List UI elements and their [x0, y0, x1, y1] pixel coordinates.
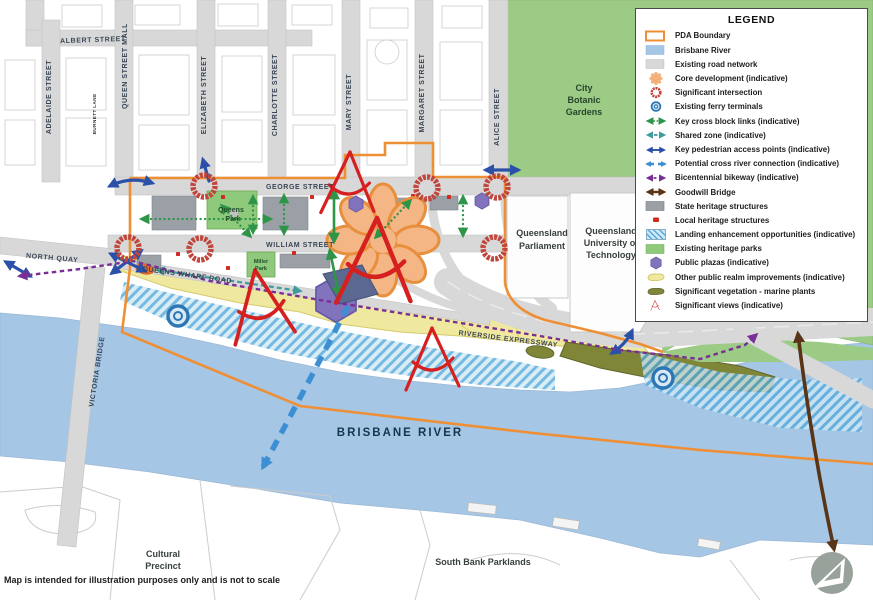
legend-label: Existing road network	[675, 60, 757, 69]
legend-label: Key pedestrian access points (indicative…	[675, 145, 830, 154]
legend-label: Existing heritage parks	[675, 244, 762, 253]
cross-river-icon	[643, 158, 669, 170]
cross-block-links-icon	[643, 115, 669, 127]
legend-row-cross-block: Key cross block links (indicative)	[643, 115, 860, 127]
south-bank-parklands-label: South Bank Parklands	[435, 557, 531, 567]
significant-views-icon	[643, 300, 669, 312]
legend-label: Local heritage structures	[675, 216, 769, 225]
alice-street-label: ALICE STREET	[494, 88, 501, 146]
north-arrow-logo	[811, 552, 853, 594]
legend-row-views: Significant views (indicative)	[643, 300, 860, 312]
legend-row-heritage-parks: Existing heritage parks	[643, 243, 860, 255]
qut-label: Queensland	[585, 226, 637, 236]
burnett-lane-label: BURNETT LANE	[92, 93, 98, 134]
legend-title: LEGEND	[643, 14, 860, 26]
charlotte-street-label: CHARLOTTE STREET	[272, 54, 279, 136]
cultural-precinct-label2: Precinct	[145, 561, 181, 571]
queens-park-label2: Park	[225, 216, 240, 223]
queen-street-mall-label: QUEEN STREET MALL	[122, 23, 129, 109]
botanic-gardens-label: City	[575, 83, 592, 93]
state-heritage-icon	[643, 200, 669, 212]
map-disclaimer: Map is intended for illustration purpose…	[4, 575, 280, 585]
parliament-label2: Parliament	[519, 241, 565, 251]
mary-street-label: MARY STREET	[346, 74, 353, 131]
legend-panel: LEGEND PDA Boundary Brisbane River Exist…	[635, 8, 868, 322]
queens-park-label: Queens	[218, 207, 244, 214]
botanic-gardens-label2: Botanic	[567, 95, 600, 105]
miller-park-label: Miller	[254, 259, 269, 265]
legend-row-local-heritage: Local heritage structures	[643, 214, 860, 226]
legend-row-pda-boundary: PDA Boundary	[643, 30, 860, 42]
bikeway-icon	[643, 172, 669, 184]
ferry-terminal-west	[168, 306, 188, 326]
legend-row-river: Brisbane River	[643, 44, 860, 56]
public-realm-icon	[643, 271, 669, 283]
cultural-precinct-label: Cultural	[146, 549, 180, 559]
legend-row-ferry: Existing ferry terminals	[643, 101, 860, 113]
legend-row-goodwill: Goodwill Bridge	[643, 186, 860, 198]
goodwill-bridge-icon	[643, 186, 669, 198]
river-swatch-icon	[643, 44, 669, 56]
legend-label: Existing ferry terminals	[675, 102, 763, 111]
vegetation-icon	[643, 285, 669, 297]
legend-label: Brisbane River	[675, 46, 731, 55]
parliament-label: Queensland	[516, 228, 568, 238]
legend-row-shared-zone: Shared zone (indicative)	[643, 129, 860, 141]
legend-row-public-realm: Other public realm improvements (indicat…	[643, 271, 860, 283]
legend-row-bikeway: Bicentennial bikeway (indicative)	[643, 172, 860, 184]
ferry-terminal-east	[653, 368, 673, 388]
legend-label: Public plazas (indicative)	[675, 258, 769, 267]
pedestrian-access-icon	[643, 144, 669, 156]
legend-row-plazas: Public plazas (indicative)	[643, 257, 860, 269]
legend-label: Other public realm improvements (indicat…	[675, 273, 845, 282]
pda-boundary-icon	[643, 30, 669, 42]
ferry-icon	[643, 101, 669, 113]
legend-label: Goodwill Bridge	[675, 188, 736, 197]
elizabeth-street-label: ELIZABETH STREET	[201, 56, 208, 135]
legend-label: Significant views (indicative)	[675, 301, 783, 310]
margaret-street-label: MARGARET STREET	[419, 53, 426, 132]
legend-row-pedestrian: Key pedestrian access points (indicative…	[643, 144, 860, 156]
brisbane-river-label: BRISBANE RIVER	[337, 427, 463, 439]
local-heritage-icon	[643, 214, 669, 226]
legend-label: Bicentennial bikeway (indicative)	[675, 173, 799, 182]
legend-row-state-heritage: State heritage structures	[643, 200, 860, 212]
legend-row-intersection: Significant intersection	[643, 87, 860, 99]
legend-label: Key cross block links (indicative)	[675, 117, 800, 126]
heritage-parks-icon	[643, 243, 669, 255]
public-plaza-icon	[643, 257, 669, 269]
legend-label: Shared zone (indicative)	[675, 131, 766, 140]
legend-label: Significant vegetation - marine plants	[675, 287, 815, 296]
shared-zone-icon	[643, 129, 669, 141]
intersection-icon	[643, 87, 669, 99]
legend-label: Landing enhancement opportunities (indic…	[675, 230, 855, 239]
qut-label2: University of	[584, 238, 640, 248]
william-street-label: WILLIAM STREET	[266, 242, 334, 249]
planning-map: ALBERT STREET ADELAIDE STREET BURNETT LA…	[0, 0, 873, 600]
legend-row-vegetation: Significant vegetation - marine plants	[643, 285, 860, 297]
legend-label: Significant intersection	[675, 88, 762, 97]
botanic-gardens-label3: Gardens	[566, 107, 603, 117]
road-swatch-icon	[643, 58, 669, 70]
miller-park-label2: Park	[255, 266, 268, 272]
legend-row-road-network: Existing road network	[643, 58, 860, 70]
legend-label: PDA Boundary	[675, 31, 730, 40]
legend-label: Potential cross river connection (indica…	[675, 159, 839, 168]
adelaide-street-label: ADELAIDE STREET	[46, 60, 53, 134]
legend-row-landing: Landing enhancement opportunities (indic…	[643, 229, 860, 241]
landing-enhancement-icon	[643, 229, 669, 241]
george-street-label: GEORGE STREET	[266, 184, 334, 191]
legend-label: Core development (indicative)	[675, 74, 788, 83]
core-development-icon	[643, 73, 669, 85]
building-outlines	[5, 4, 482, 170]
legend-row-core-development: Core development (indicative)	[643, 73, 860, 85]
legend-row-cross-river: Potential cross river connection (indica…	[643, 158, 860, 170]
qut-label3: Technology	[586, 250, 636, 260]
legend-label: State heritage structures	[675, 202, 768, 211]
